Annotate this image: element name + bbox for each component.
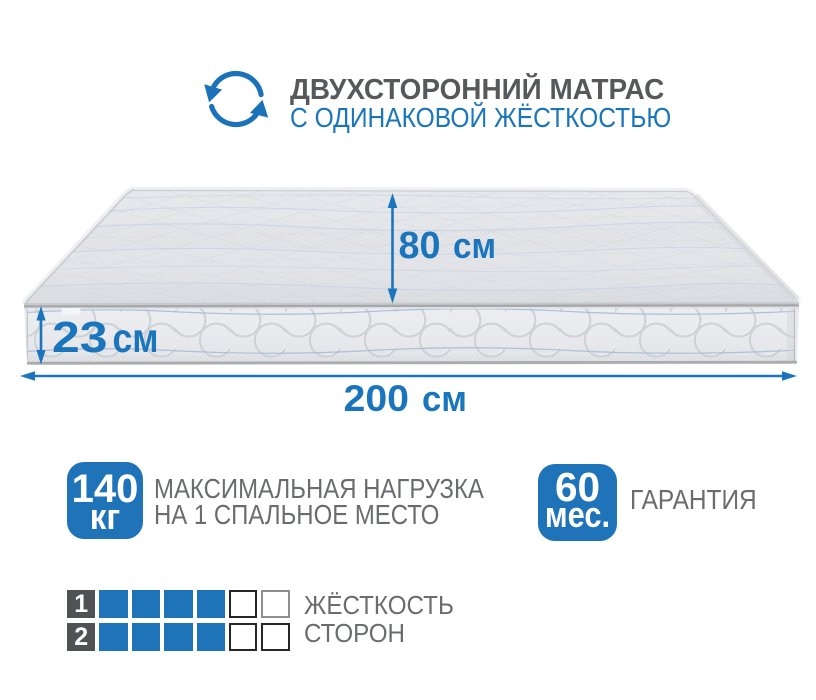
- svg-text:80: 80: [399, 224, 441, 267]
- svg-text:23: 23: [52, 313, 108, 362]
- svg-text:см: см: [113, 315, 159, 361]
- svg-text:200: 200: [344, 377, 410, 419]
- svg-text:см: см: [453, 225, 496, 266]
- svg-text:см: см: [422, 378, 467, 419]
